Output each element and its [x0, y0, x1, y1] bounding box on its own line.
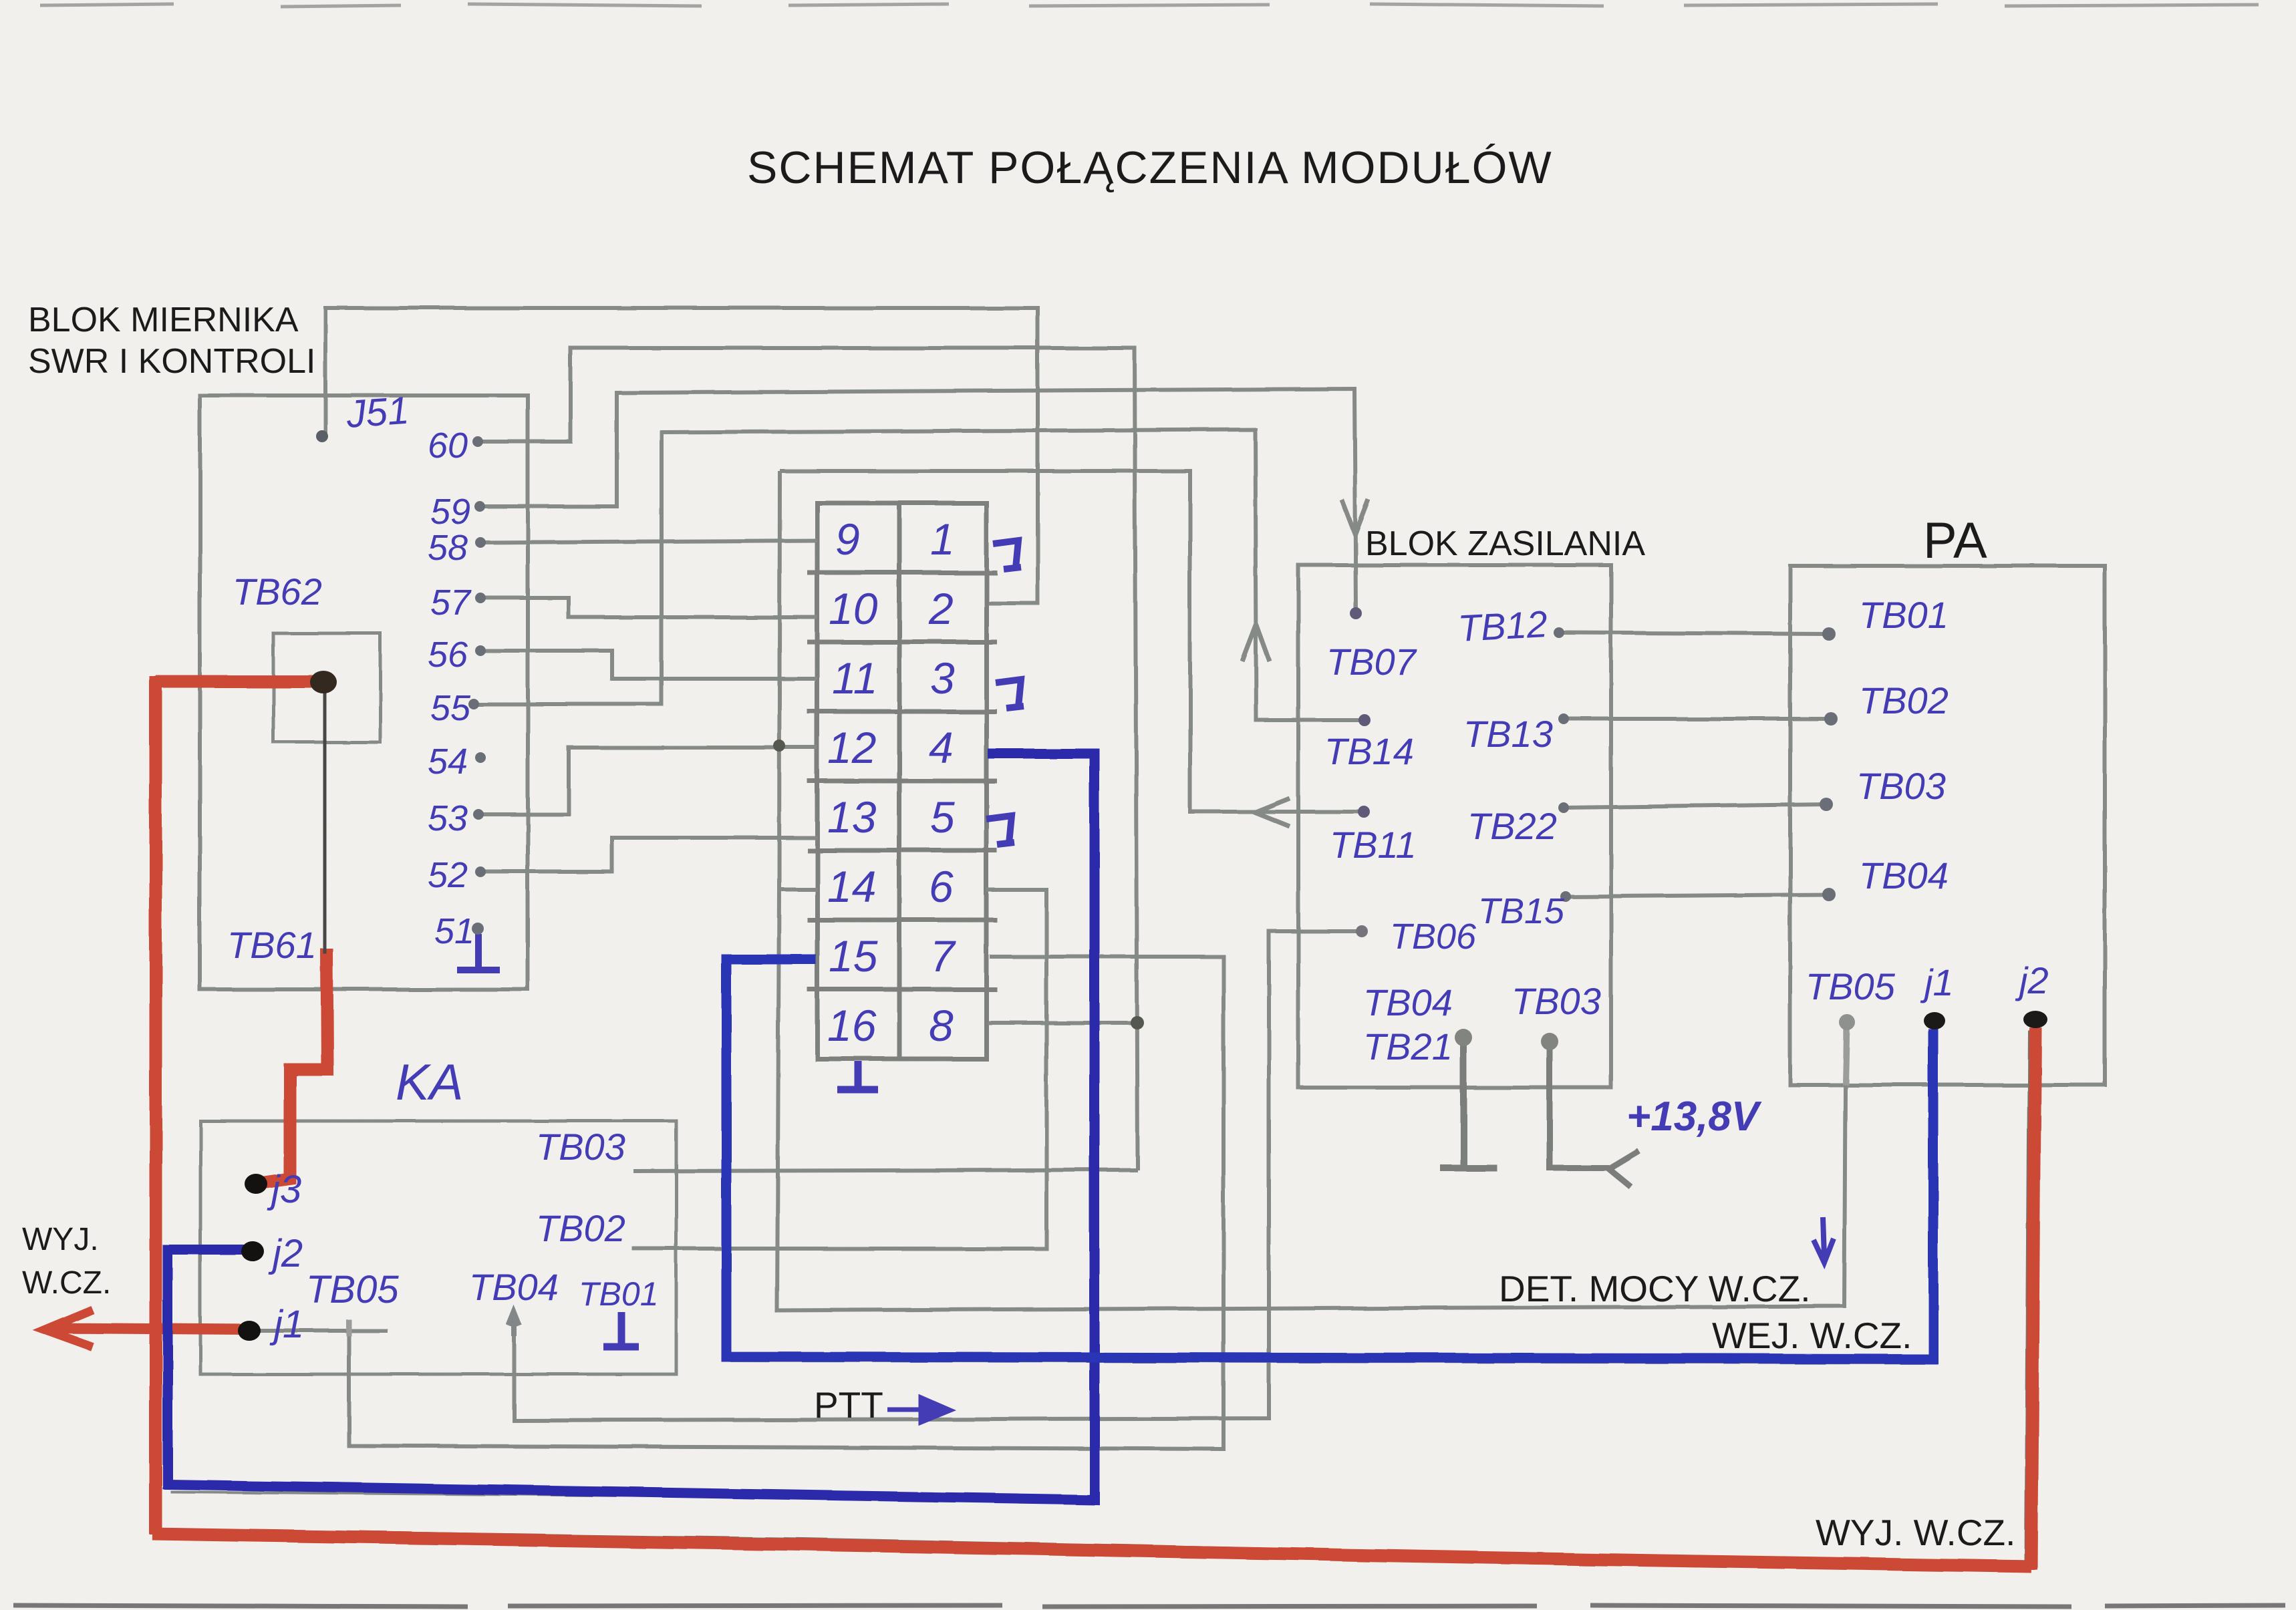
svg-text:56: 56	[428, 635, 468, 675]
svg-text:TB12: TB12	[1457, 603, 1548, 649]
svg-text:1: 1	[930, 514, 955, 564]
svg-text:8: 8	[929, 1001, 954, 1050]
svg-text:BLOK MIERNIKA: BLOK MIERNIKA	[28, 301, 299, 339]
svg-text:TB15: TB15	[1478, 891, 1565, 931]
svg-text:TB04: TB04	[1859, 854, 1949, 897]
svg-text:16: 16	[827, 1001, 877, 1050]
svg-text:TB13: TB13	[1463, 713, 1553, 755]
svg-text:TB06: TB06	[1390, 917, 1477, 957]
svg-text:j2: j2	[268, 1232, 303, 1275]
svg-text:DET. MOCY W.CZ.: DET. MOCY W.CZ.	[1499, 1268, 1811, 1309]
svg-text:13: 13	[827, 792, 877, 842]
svg-text:TB22: TB22	[1467, 805, 1557, 847]
svg-text:TB05: TB05	[1806, 965, 1896, 1007]
svg-text:j1: j1	[1920, 961, 1954, 1003]
svg-text:PTT: PTT	[814, 1384, 883, 1426]
svg-text:TB02: TB02	[1859, 679, 1949, 721]
svg-text:60: 60	[428, 426, 468, 466]
svg-text:TB03: TB03	[1512, 980, 1601, 1022]
svg-text:14: 14	[827, 862, 876, 911]
svg-text:7: 7	[930, 931, 956, 981]
svg-text:52: 52	[428, 855, 468, 895]
svg-text:58: 58	[428, 528, 468, 568]
svg-text:j1: j1	[269, 1303, 304, 1346]
svg-text:TB21: TB21	[1363, 1025, 1453, 1068]
svg-text:4: 4	[929, 723, 954, 772]
svg-text:j2: j2	[2015, 959, 2049, 1001]
svg-text:54: 54	[428, 742, 468, 782]
svg-text:TB07: TB07	[1326, 641, 1417, 683]
svg-text:59: 59	[430, 492, 470, 532]
svg-text:2: 2	[928, 584, 954, 633]
svg-text:12: 12	[827, 723, 876, 772]
svg-text:3: 3	[930, 653, 955, 703]
svg-text:TB04: TB04	[469, 1266, 559, 1308]
svg-text:TB11: TB11	[1330, 824, 1417, 866]
svg-text:WYJ.: WYJ.	[22, 1222, 99, 1257]
svg-text:11: 11	[832, 653, 878, 703]
svg-text:PA: PA	[1923, 512, 1987, 569]
svg-text:J51: J51	[344, 389, 410, 436]
svg-text:WEJ. W.CZ.: WEJ. W.CZ.	[1712, 1315, 1912, 1356]
svg-text:5: 5	[930, 792, 955, 842]
svg-text:+13,8V: +13,8V	[1626, 1094, 1762, 1140]
svg-text:SWR I KONTROLI: SWR I KONTROLI	[28, 342, 315, 381]
svg-text:57: 57	[430, 583, 472, 623]
svg-text:TB62: TB62	[233, 571, 322, 613]
svg-text:j3: j3	[267, 1168, 301, 1211]
svg-text:55: 55	[430, 688, 471, 728]
svg-text:W.CZ.: W.CZ.	[22, 1265, 111, 1301]
svg-text:TB03: TB03	[1856, 765, 1946, 807]
svg-text:TB02: TB02	[536, 1207, 625, 1249]
svg-text:TB61: TB61	[227, 924, 317, 966]
svg-text:WYJ. W.CZ.: WYJ. W.CZ.	[1816, 1512, 2015, 1553]
svg-text:SCHEMAT POŁĄCZENIA MODUŁÓW: SCHEMAT POŁĄCZENIA MODUŁÓW	[747, 142, 1553, 193]
svg-text:6: 6	[929, 862, 954, 911]
svg-text:10: 10	[829, 584, 878, 633]
svg-text:KA: KA	[396, 1054, 463, 1111]
svg-text:TB01: TB01	[579, 1275, 659, 1313]
svg-text:TB04: TB04	[1363, 981, 1453, 1023]
svg-text:TB05: TB05	[306, 1268, 399, 1311]
svg-text:TB01: TB01	[1859, 594, 1949, 636]
svg-text:9: 9	[835, 514, 860, 564]
svg-text:BLOK ZASILANIA: BLOK ZASILANIA	[1365, 524, 1645, 563]
svg-text:51: 51	[434, 911, 474, 951]
svg-text:TB03: TB03	[536, 1126, 625, 1168]
svg-text:15: 15	[829, 931, 878, 981]
svg-text:53: 53	[428, 798, 468, 838]
svg-text:TB14: TB14	[1324, 730, 1414, 772]
